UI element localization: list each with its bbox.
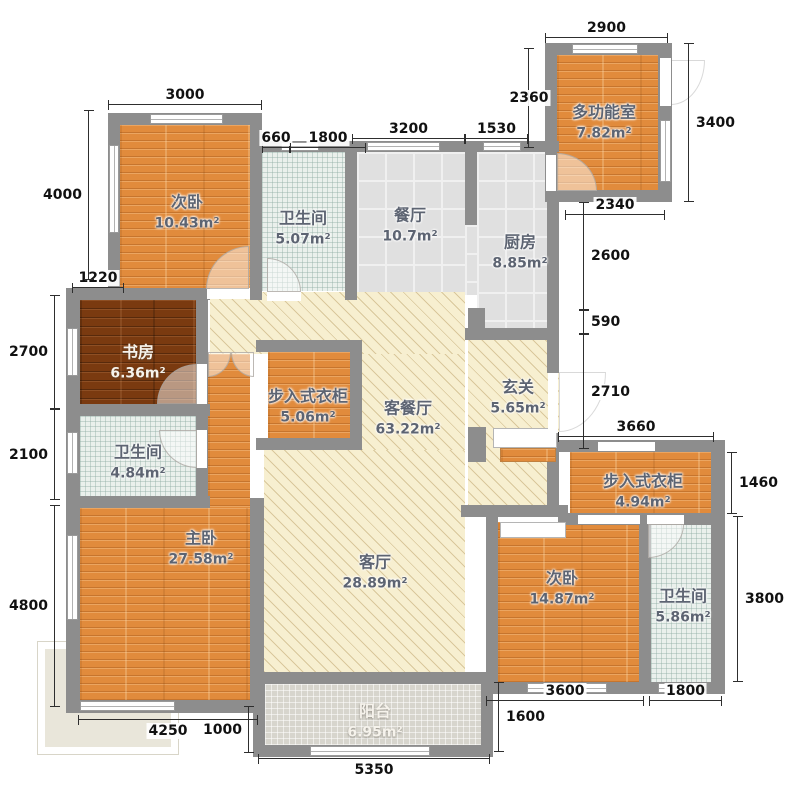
room-label-balcony: 阳台6.95m² bbox=[347, 699, 402, 742]
dim-3600: 3600 bbox=[486, 700, 644, 701]
room-label-master: 主卧27.58m² bbox=[168, 526, 233, 569]
window bbox=[483, 142, 521, 151]
dim-4000: 4000 bbox=[88, 110, 89, 280]
dim-590: 590 bbox=[583, 310, 584, 334]
wall bbox=[468, 308, 485, 340]
dim-3660: 3660 bbox=[558, 436, 714, 437]
wall bbox=[253, 672, 493, 684]
window bbox=[660, 120, 671, 182]
dim-3200: 3200 bbox=[352, 138, 465, 139]
dim-2900: 2900 bbox=[545, 37, 668, 38]
dim-2100: 2100 bbox=[54, 409, 55, 500]
wall bbox=[461, 505, 568, 517]
door-opening bbox=[197, 364, 207, 404]
wall bbox=[547, 202, 559, 373]
window bbox=[67, 328, 78, 376]
door-opening bbox=[546, 155, 556, 191]
entry-hall-floor bbox=[468, 340, 559, 505]
dim-1530: 1530 bbox=[465, 138, 528, 139]
dim-1460: 1460 bbox=[731, 452, 732, 514]
window bbox=[67, 535, 78, 620]
room-label-kitchen: 厨房8.85m² bbox=[492, 230, 547, 273]
room-dining-kitchen-link bbox=[465, 225, 477, 295]
dim-2340: 2340 bbox=[565, 214, 665, 215]
room-label-study: 书房6.36m² bbox=[110, 340, 165, 383]
dim-3000: 3000 bbox=[108, 104, 262, 105]
wall bbox=[66, 404, 210, 416]
wall bbox=[256, 340, 362, 352]
room-label-closet-right: 步入式衣柜4.94m² bbox=[603, 469, 683, 512]
wardrobe bbox=[500, 522, 566, 538]
door-opening bbox=[267, 292, 301, 301]
window bbox=[367, 142, 440, 151]
wall bbox=[711, 440, 725, 694]
dim-2600: 2600 bbox=[583, 202, 584, 310]
room-label-living: 客厅28.89m² bbox=[342, 550, 407, 593]
dim-1600: 1600 bbox=[498, 682, 499, 752]
window bbox=[572, 44, 638, 54]
wall bbox=[66, 288, 210, 300]
wall bbox=[465, 141, 477, 225]
door-opening bbox=[660, 58, 671, 106]
dim-2360: 2360 bbox=[528, 48, 529, 148]
door-opening bbox=[647, 515, 684, 524]
dim-5350: 5350 bbox=[258, 758, 490, 759]
door-opening bbox=[197, 430, 207, 468]
room-label-bath-top: 卫生间5.07m² bbox=[275, 206, 330, 249]
room-label-entry: 玄关5.65m² bbox=[490, 375, 545, 418]
dim-2700: 2700 bbox=[54, 295, 55, 409]
wall bbox=[345, 141, 357, 300]
room-label-multi: 多功能室7.82m² bbox=[572, 100, 636, 143]
dim-1800-bottom: 1800 bbox=[649, 700, 722, 701]
room-label-bedroom-right: 次卧14.87m² bbox=[529, 566, 594, 609]
dim-1000: 1000 bbox=[248, 706, 249, 753]
dim-4250: 4250 bbox=[78, 719, 258, 720]
dim-4800: 4800 bbox=[54, 505, 55, 707]
entry-cabinet-top bbox=[500, 448, 556, 462]
room-label-living-dining: 客餐厅63.22m² bbox=[375, 396, 440, 439]
room-label-closet-left: 步入式衣柜5.06m² bbox=[268, 384, 348, 427]
master-corridor-floor bbox=[208, 354, 250, 508]
wall bbox=[468, 427, 486, 462]
wall bbox=[486, 510, 498, 694]
window bbox=[80, 701, 175, 711]
floor-plan: 次卧10.43m² 卫生间5.07m² 餐厅10.7m² 厨房8.85m² 多功… bbox=[0, 0, 800, 800]
wall bbox=[350, 352, 362, 444]
room-label-dining: 餐厅10.7m² bbox=[382, 203, 437, 246]
dim-3800: 3800 bbox=[737, 516, 738, 682]
dim-3400: 3400 bbox=[688, 43, 689, 202]
dim-1220: 1220 bbox=[72, 287, 124, 288]
door-opening bbox=[207, 289, 250, 299]
window bbox=[310, 746, 430, 756]
room-label-bath-right: 卫生间5.86m² bbox=[655, 584, 710, 627]
window bbox=[109, 145, 119, 233]
room-label-bedroom-topleft: 次卧10.43m² bbox=[154, 190, 219, 233]
dim-660: 660 bbox=[262, 147, 290, 148]
dim-1800-top: 1800 bbox=[290, 147, 366, 148]
room-label-bath-left: 卫生间4.84m² bbox=[110, 440, 165, 483]
window bbox=[67, 432, 78, 474]
door-opening bbox=[578, 515, 640, 524]
wall bbox=[256, 438, 362, 450]
window bbox=[150, 114, 223, 124]
closet-opening bbox=[598, 442, 655, 451]
wall bbox=[66, 496, 210, 508]
main-entry-opening bbox=[548, 373, 558, 433]
dim-2710: 2710 bbox=[583, 334, 584, 449]
